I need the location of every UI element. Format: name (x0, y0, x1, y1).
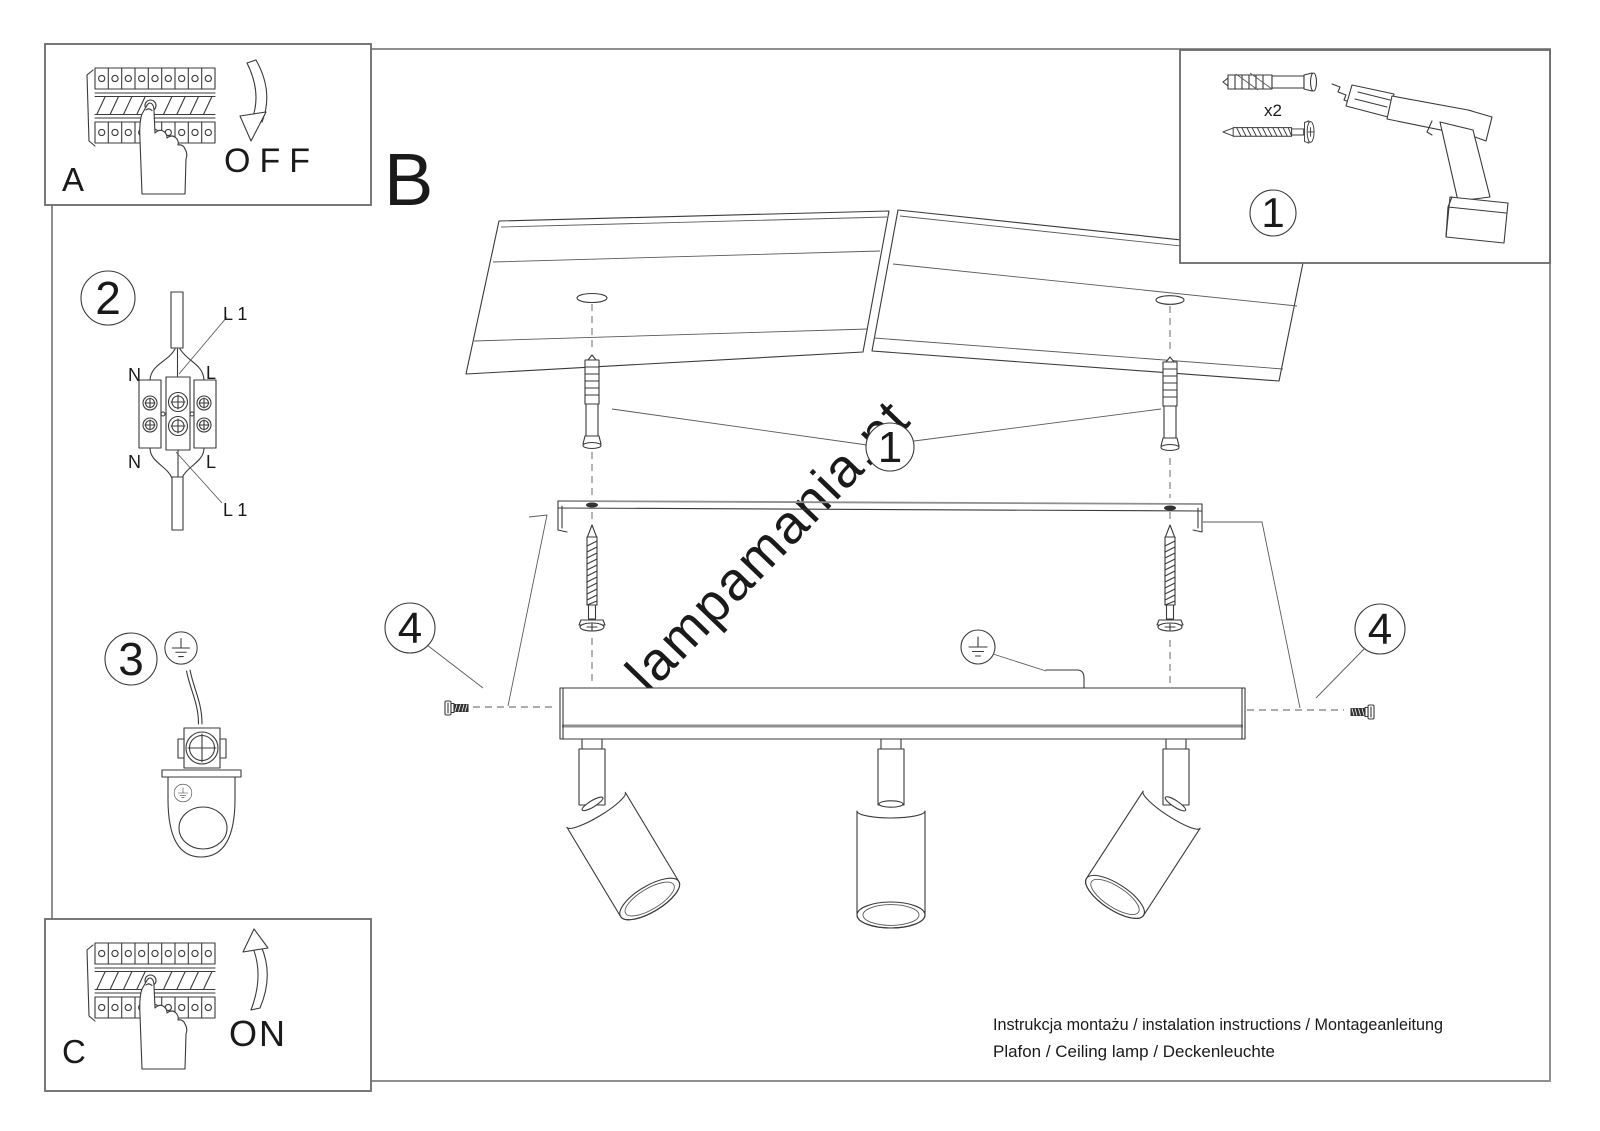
step-c-label: C (62, 1033, 86, 1070)
label-l-bottom: L (206, 452, 216, 472)
label-l1-top: L 1 (223, 304, 247, 324)
callout-4-right-number: 4 (1368, 605, 1392, 654)
wall-plug-item (1223, 73, 1317, 91)
earth-icon-step3 (165, 632, 197, 664)
power-on-label: ON (229, 1013, 287, 1054)
plug-quantity: x2 (1264, 101, 1282, 120)
wiring-step: 2 L 1 N L N L L 1 (81, 271, 247, 530)
label-n-top: N (128, 365, 141, 385)
step-c-box: C ON (45, 919, 371, 1091)
mounting-plate (162, 770, 241, 857)
ground-step: 3 (105, 632, 241, 857)
terminal-block (139, 377, 216, 450)
callout-4-right-leader (1316, 648, 1365, 698)
projection-lines (508, 515, 1300, 708)
footer-line2: Plafon / Ceiling lamp / Deckenleuchte (993, 1042, 1275, 1061)
diagram-svg: lampamania.pt 1 4 (0, 0, 1600, 1131)
power-off-label: OFF (224, 142, 319, 180)
earth-leader (993, 654, 1046, 671)
callout-2-number: 2 (95, 272, 121, 324)
step-a-box: A OFF (45, 44, 371, 205)
mounting-screw-left (579, 525, 605, 631)
callout-1-number: 1 (878, 423, 902, 472)
label-l1-bottom: L 1 (223, 500, 247, 520)
ceiling-panel-left (466, 211, 889, 374)
footer-line1: Instrukcja montażu / instalation instruc… (993, 1015, 1443, 1034)
parts-box: x2 1 (1180, 50, 1550, 263)
drill-hole-left (577, 294, 607, 303)
callout-4-left-leader (427, 645, 483, 688)
callout-4-left-number: 4 (398, 604, 422, 653)
step-b-label: B (384, 138, 433, 221)
side-screw-left (445, 701, 468, 715)
mounting-bracket (558, 501, 1202, 532)
spotlight-right (1079, 739, 1205, 926)
spotlight-left (562, 739, 686, 928)
drill-hole-right (1156, 296, 1184, 305)
callout-3-number: 3 (118, 633, 144, 685)
earth-terminal (178, 728, 226, 768)
cable-top (171, 292, 183, 348)
parts-callout-1-number: 1 (1261, 189, 1284, 236)
step-a-label: A (62, 161, 84, 198)
cable-bottom (172, 477, 183, 530)
label-l-top: L (206, 363, 216, 383)
spotlight-middle (857, 739, 925, 928)
lamp-rail (560, 688, 1245, 739)
wall-plug-right (1161, 357, 1179, 451)
mounting-screw-right (1157, 525, 1183, 631)
earth-icon (961, 630, 995, 664)
wall-plug-left (583, 355, 601, 449)
instruction-sheet: lampamania.pt 1 4 (0, 0, 1600, 1131)
label-n-bottom: N (128, 452, 141, 472)
earth-wire (1046, 670, 1084, 689)
main-assembly: 1 4 4 (385, 294, 1405, 929)
side-screw-right (1351, 705, 1374, 719)
earth-wire-step3 (187, 670, 203, 724)
